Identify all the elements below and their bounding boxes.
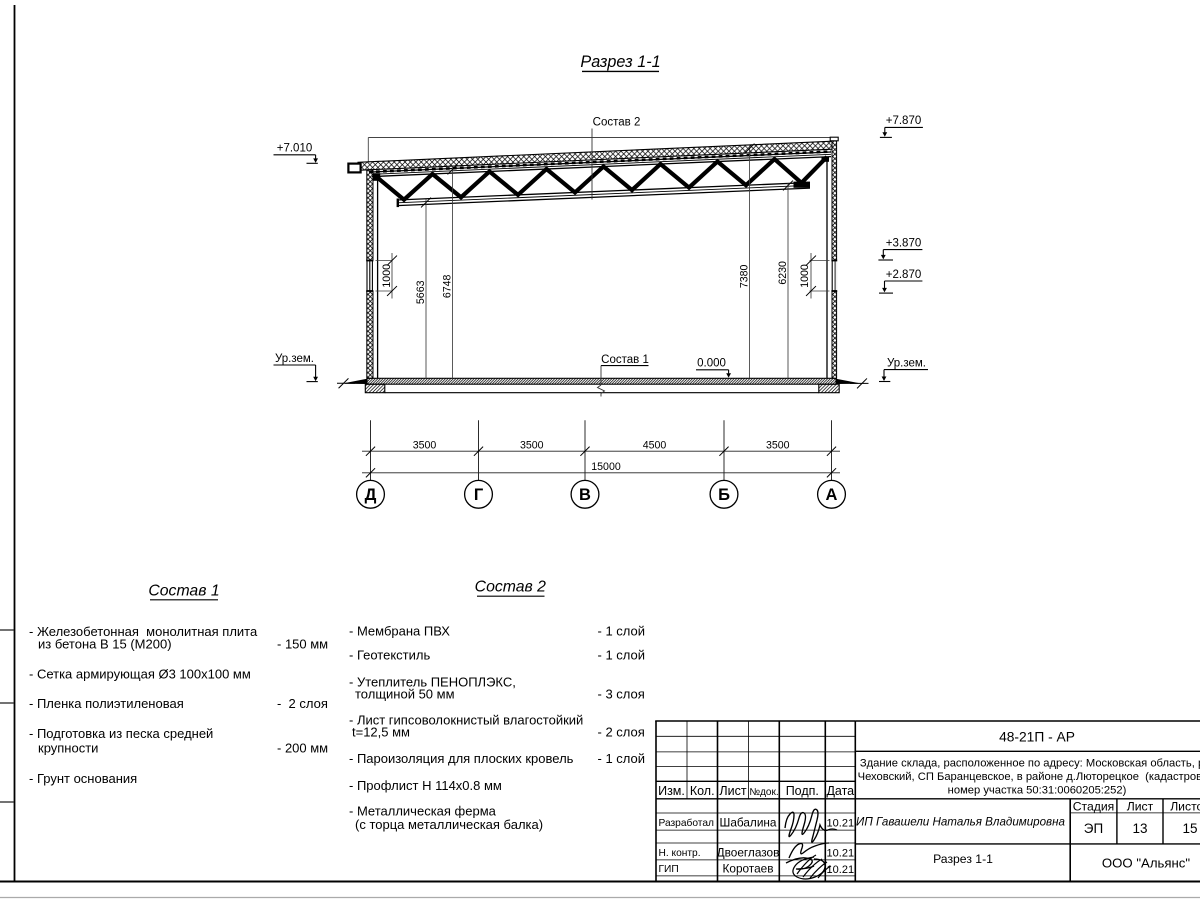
svg-text:(с торца металлическая балка): (с торца металлическая балка) [355, 817, 543, 832]
svg-text:Чеховский, СП Баранцевское, в: Чеховский, СП Баранцевское, в районе д.Л… [858, 771, 1200, 783]
svg-text:А: А [826, 486, 838, 504]
svg-text:- 1 слой: - 1 слой [598, 623, 646, 638]
svg-text:Кол.: Кол. [690, 784, 715, 798]
svg-text:ИП Гавашели Наталья Владимиров: ИП Гавашели Наталья Владимировна [856, 815, 1065, 828]
svg-text:1000: 1000 [381, 264, 393, 288]
svg-text:- 200 мм: - 200 мм [277, 741, 328, 756]
svg-text:- Геотекстиль: - Геотекстиль [349, 648, 430, 663]
svg-text:№док.: №док. [749, 787, 778, 798]
svg-text:Разрез 1-1: Разрез 1-1 [933, 852, 993, 866]
svg-text:из бетона В 15 (М200): из бетона В 15 (М200) [38, 636, 172, 651]
svg-text:ООО "Альянс": ООО "Альянс" [1102, 855, 1190, 870]
svg-text:- 3 слоя: - 3 слоя [598, 687, 645, 702]
svg-text:10.21: 10.21 [827, 817, 855, 829]
svg-text:+2.870: +2.870 [886, 269, 922, 281]
svg-text:48-21П - АР: 48-21П - АР [999, 730, 1075, 745]
svg-text:Стадия: Стадия [1073, 799, 1115, 813]
svg-text:Лист: Лист [1127, 799, 1154, 813]
svg-text:- Мембрана ПВХ: - Мембрана ПВХ [349, 623, 450, 638]
svg-text:4500: 4500 [643, 440, 667, 452]
svg-text:15000: 15000 [591, 461, 621, 473]
svg-text:Состав 1: Состав 1 [148, 582, 219, 599]
svg-text:Шабалина: Шабалина [720, 815, 777, 829]
svg-text:Состав 2: Состав 2 [475, 578, 546, 595]
svg-text:Изм.: Изм. [658, 784, 685, 798]
svg-text:ГИП: ГИП [659, 864, 679, 875]
svg-text:номер участка 50:31:0060205:25: номер участка 50:31:0060205:252) [948, 784, 1127, 796]
svg-text:Д: Д [365, 486, 377, 504]
svg-text:5663: 5663 [415, 280, 427, 304]
svg-text:7380: 7380 [739, 265, 751, 289]
svg-text:Здание склада, расположенное п: Здание склада, расположенное по адресу: … [860, 758, 1200, 770]
svg-text:t=12,5 мм: t=12,5 мм [352, 724, 410, 739]
svg-text:1000: 1000 [799, 264, 811, 288]
svg-text:6748: 6748 [442, 275, 454, 299]
svg-text:- Подготовка из песка средней: - Подготовка из песка средней [29, 726, 213, 741]
svg-text:Дата: Дата [826, 784, 854, 798]
svg-text:Разрез 1-1: Разрез 1-1 [580, 53, 660, 71]
svg-text:- 1 слой: - 1 слой [598, 751, 646, 766]
svg-text:6230: 6230 [777, 261, 789, 285]
svg-text:3500: 3500 [413, 440, 437, 452]
svg-text:Б: Б [718, 486, 730, 504]
svg-text:- Профлист Н 114х0.8 мм: - Профлист Н 114х0.8 мм [349, 778, 502, 793]
svg-text:толщиной 50 мм: толщиной 50 мм [355, 687, 455, 702]
svg-text:Н. контр.: Н. контр. [659, 848, 701, 859]
svg-text:Подп.: Подп. [786, 784, 819, 798]
svg-text:Состав 1: Состав 1 [601, 354, 649, 366]
svg-text:+3.870: +3.870 [886, 237, 922, 249]
svg-text:- 2 слоя: - 2 слоя [598, 724, 645, 739]
svg-text:- 2 слоя: - 2 слоя [277, 696, 328, 711]
svg-text:Листов: Листов [1170, 799, 1200, 813]
svg-text:Г: Г [474, 486, 484, 504]
svg-text:13: 13 [1132, 821, 1147, 836]
svg-text:+7.870: +7.870 [886, 115, 922, 127]
svg-text:В: В [579, 486, 591, 504]
svg-text:- Сетка армирующая Ø3 100х100: - Сетка армирующая Ø3 100х100 мм [29, 666, 251, 681]
svg-text:ЭП: ЭП [1084, 821, 1103, 836]
svg-text:Состав 2: Состав 2 [593, 117, 641, 129]
svg-text:0.000: 0.000 [697, 358, 726, 370]
svg-text:Лист: Лист [719, 784, 746, 798]
svg-text:крупности: крупности [38, 741, 98, 756]
svg-text:3500: 3500 [520, 440, 544, 452]
svg-text:+7.010: +7.010 [277, 143, 313, 155]
svg-text:- Грунт основания: - Грунт основания [29, 771, 137, 786]
svg-text:- 1 слой: - 1 слой [598, 648, 646, 663]
svg-text:Двоеглазов: Двоеглазов [717, 846, 780, 860]
svg-text:10.21: 10.21 [827, 848, 855, 860]
svg-text:Ур.зем.: Ур.зем. [887, 357, 926, 369]
svg-text:- Пленка полиэтиленовая: - Пленка полиэтиленовая [29, 696, 184, 711]
svg-text:Коротаев: Коротаев [723, 862, 774, 876]
svg-text:Разработал: Разработал [659, 817, 715, 829]
svg-text:- Пароизоляция для плоских кро: - Пароизоляция для плоских кровель [349, 751, 574, 766]
svg-text:Ур.зем.: Ур.зем. [275, 353, 314, 365]
svg-text:15: 15 [1182, 821, 1197, 836]
svg-text:- 150 мм: - 150 мм [277, 636, 328, 651]
svg-text:3500: 3500 [766, 440, 790, 452]
